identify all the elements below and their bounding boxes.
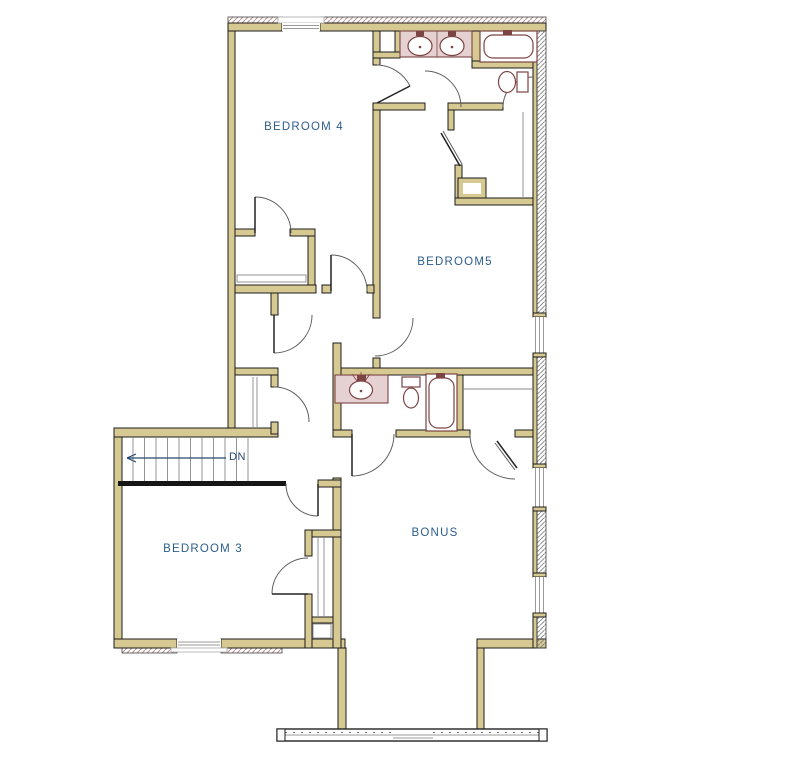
double-vanity	[400, 31, 472, 57]
single-vanity	[335, 372, 388, 403]
room-label-bonus: BONUS	[412, 527, 459, 539]
bottom-window-strip	[277, 729, 547, 741]
right-exterior-wall	[533, 31, 546, 648]
window	[278, 17, 324, 31]
room-label-bedroom4: BEDROOM 4	[264, 121, 344, 133]
room-label-bedroom3: BEDROOM 3	[163, 543, 243, 555]
room-label-bedroom5: BEDROOM5	[417, 256, 492, 268]
toilet-hall	[402, 377, 420, 408]
window	[533, 573, 546, 617]
bathtub-main	[480, 30, 537, 62]
doors	[255, 65, 533, 594]
toilet-main	[499, 72, 529, 93]
window	[533, 464, 546, 511]
window	[533, 313, 546, 357]
stairs-dn-label: DN	[229, 451, 246, 463]
bathtub-hall	[426, 373, 457, 431]
floor-plan-drawing	[0, 0, 790, 763]
dn-arrow	[127, 454, 226, 462]
floor-plan: BEDROOM 4 BEDROOM5 BEDROOM 3 BONUS DN	[0, 0, 790, 763]
window	[171, 639, 227, 652]
